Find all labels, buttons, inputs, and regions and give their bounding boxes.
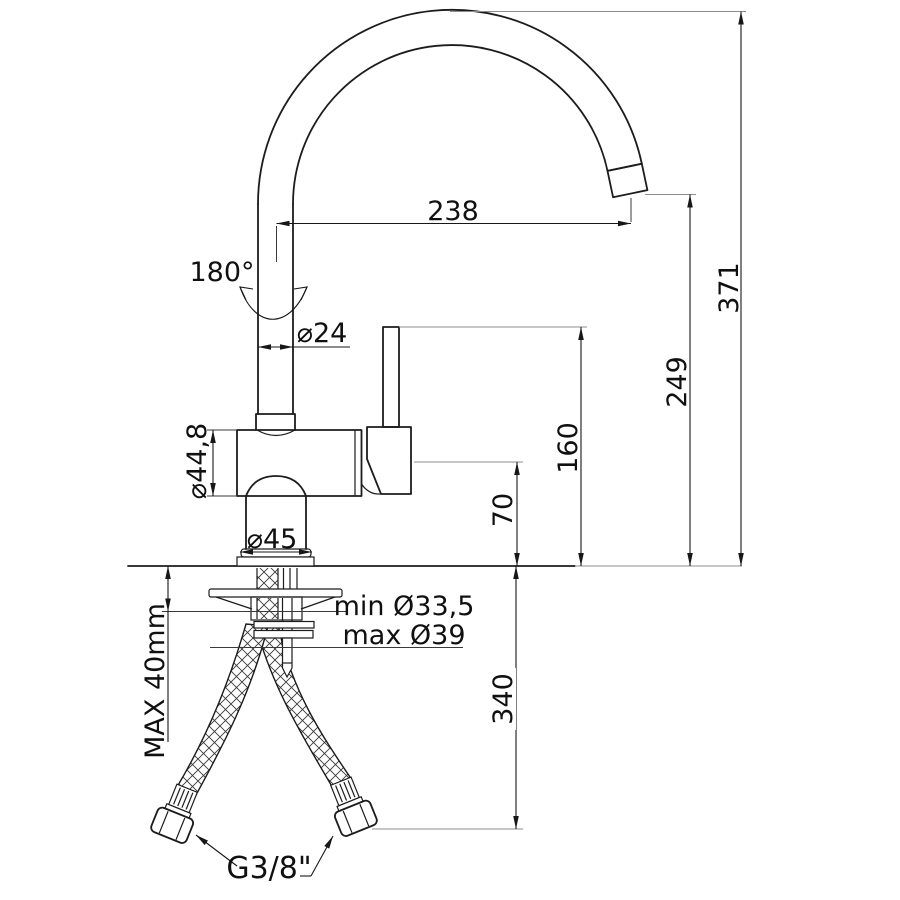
dim-handle-height: 160 [553,327,584,566]
mixer-body [237,430,381,496]
supply-hose-right [256,624,350,790]
dim-outlet-height: 249 [662,195,693,567]
dim-body-diameter: ⌀44,8 [182,423,213,499]
dim-label-base-diameter: ⌀45 [247,524,298,555]
dim-label-outlet-height: 249 [662,356,693,408]
dim-label-spout-reach: 238 [427,196,479,227]
dim-label-body-diameter: ⌀44,8 [182,423,213,499]
dim-supply-connection: G3/8" [196,835,333,886]
dim-hose-drop: 340 [488,566,519,829]
dim-label-swivel-angle: 180° [189,257,254,288]
label-hole-max: max Ø39 [342,620,465,651]
dim-label-tube-diameter: ⌀24 [297,318,348,349]
dim-label-hole-max: max Ø39 [342,620,465,651]
faucet-drawing: 238 371 249 160 70 340 MAX 40mm ⌀24 [0,0,900,900]
dim-body-height: 70 [488,462,519,566]
handle-lever [383,327,399,427]
mounting-plate [209,589,342,620]
dim-label-counter-thickness: MAX 40mm [140,603,171,759]
swivel-arrow-right [294,287,307,300]
label-hole-min: min Ø33,5 [334,591,475,622]
dim-label-body-height: 70 [488,493,519,527]
dim-label-supply-connection: G3/8" [226,851,311,886]
dim-label-hole-min: min Ø33,5 [334,591,475,622]
dim-spout-reach: 238 [277,196,632,227]
dim-total-height: 371 [714,12,745,567]
aerator [608,164,648,198]
center-rod [283,598,293,677]
dim-tube-diameter: ⌀24 [258,318,350,349]
dim-counter-thickness: MAX 40mm [140,566,171,759]
dim-label-handle-height: 160 [553,422,584,474]
extension-lines [162,12,746,830]
dim-swivel-angle: 180° [189,257,307,319]
handle-base [367,427,411,494]
supply-hose-left [177,624,268,795]
dim-label-hose-drop: 340 [488,673,519,725]
spout-arc [258,10,642,204]
threaded-shank [257,568,297,589]
dim-label-total-height: 371 [714,262,745,314]
technical-drawing-canvas: 238 371 249 160 70 340 MAX 40mm ⌀24 [0,0,900,900]
